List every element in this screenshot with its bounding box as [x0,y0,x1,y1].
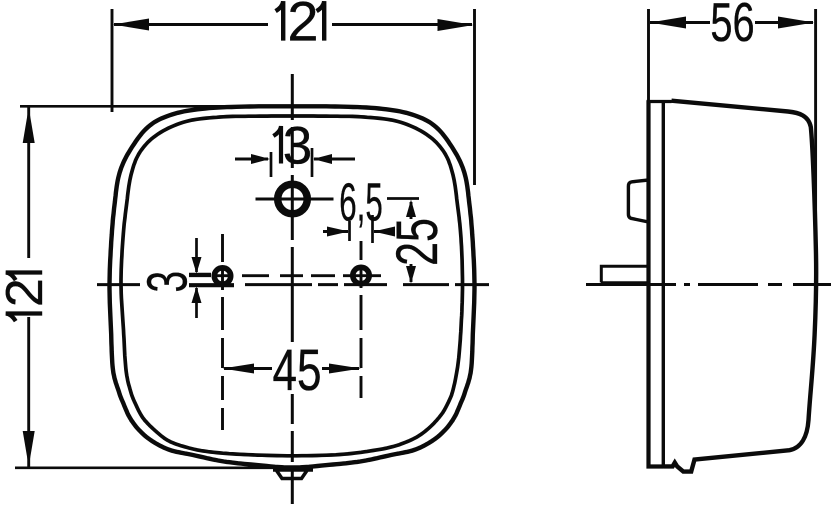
svg-text:3: 3 [283,117,312,176]
svg-text:25: 25 [385,218,450,266]
svg-text:2: 2 [0,278,54,307]
svg-text:6,5: 6,5 [339,173,383,233]
svg-text:56: 56 [710,0,754,54]
svg-text:2: 2 [287,0,318,53]
svg-text:45: 45 [272,337,321,402]
svg-text:3: 3 [136,271,199,293]
